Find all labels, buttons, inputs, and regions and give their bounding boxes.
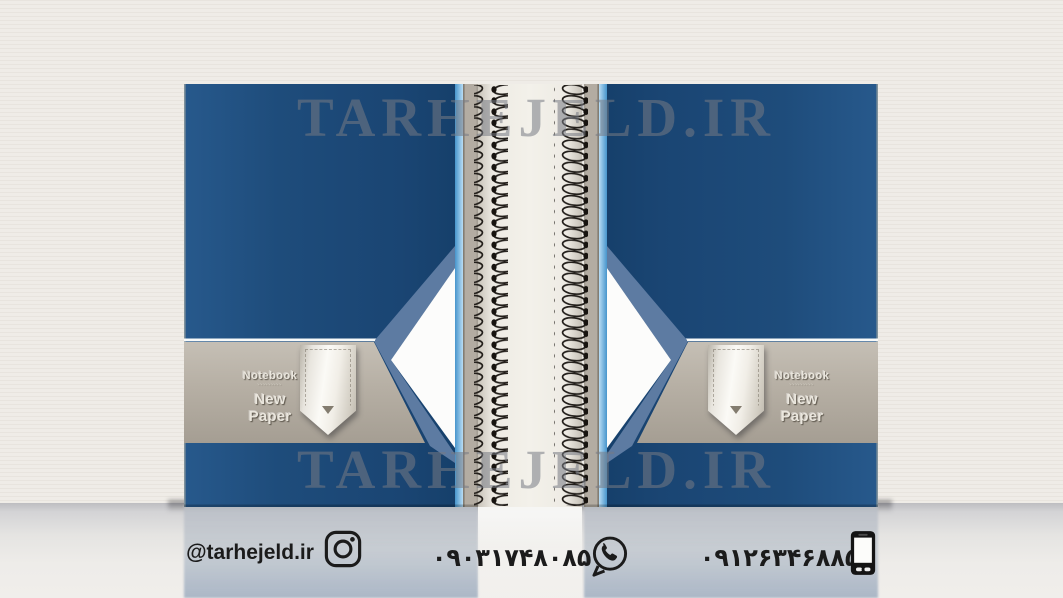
label-title: Notebook xyxy=(763,370,841,382)
label-subtitle: New Paper xyxy=(763,391,841,425)
front-cover-label: Notebook ········· New Paper xyxy=(763,370,841,425)
ribbon-notch-triangle-icon xyxy=(730,406,742,414)
label-fine-print: ········· xyxy=(231,382,309,389)
mobile-phone-icon xyxy=(849,529,877,577)
label-fine-print: ········· xyxy=(763,382,841,389)
whatsapp-icon xyxy=(588,533,632,577)
instagram-handle: @tarhejeld.ir xyxy=(182,541,318,565)
watermark-bottom: TARHEJELD.IR xyxy=(297,438,776,501)
mobile-number-secondary: ۰۹۱۲۶۳۴۶۸۸۵ xyxy=(700,543,848,572)
ribbon-notch-triangle-icon xyxy=(322,406,334,414)
mobile-number-primary: ۰۹۰۳۱۷۴۸۰۸۵ xyxy=(432,543,580,572)
back-cover-label: Notebook ········· New Paper xyxy=(231,370,309,425)
label-title: Notebook xyxy=(231,370,309,382)
watermark-top: TARHEJELD.IR xyxy=(297,86,776,149)
instagram-icon xyxy=(322,528,364,570)
scene: Notebook ········· New Paper Notebook ··… xyxy=(0,0,1063,598)
label-subtitle: New Paper xyxy=(231,391,309,425)
bookmark-ribbon-front xyxy=(708,345,764,435)
